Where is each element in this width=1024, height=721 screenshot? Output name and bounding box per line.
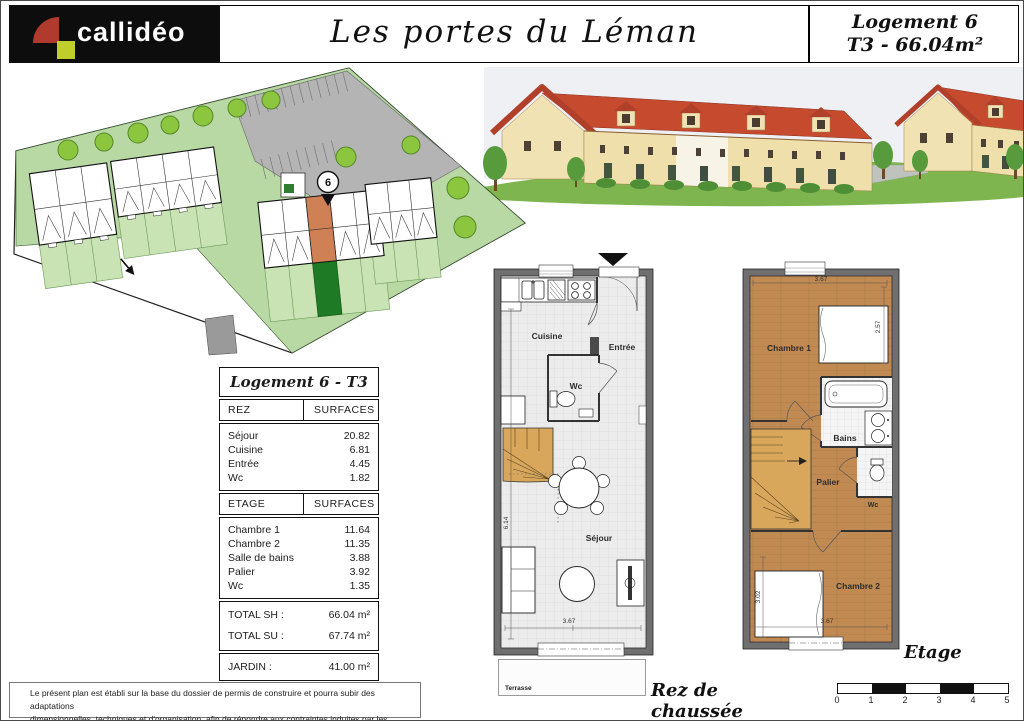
table-row: Cuisine6.81 [220, 443, 378, 457]
scale-segment [838, 684, 872, 693]
room-label-sejour: Séjour [586, 533, 613, 543]
dim-right: 2.57 [875, 320, 882, 333]
unit-info: Logement 6 T3 - 66.04m² [810, 11, 1020, 57]
table-row: Chambre 111.64 [220, 523, 378, 537]
3d-render [476, 67, 1024, 213]
bed-chambre1 [819, 306, 888, 363]
entrance-arrow-icon [598, 253, 628, 266]
scale-segment [872, 684, 906, 693]
room-label-wc: Wc [570, 381, 583, 391]
table-row: Chambre 211.35 [220, 537, 378, 551]
brand-name: callidéo [77, 17, 186, 48]
scale-label: 0 [830, 695, 844, 705]
jardin-box: JARDIN :41.00 m² [219, 653, 379, 681]
brand-logo-mark [21, 7, 83, 61]
caption-upper-floor: Etage [904, 642, 962, 663]
dim-left: 3.02 [755, 590, 762, 603]
project-title: Les portes du Léman [221, 14, 808, 50]
logo-green-square [57, 41, 75, 59]
footer-note: Le présent plan est établi sur la base d… [9, 682, 421, 718]
rez-header: REZ SURFACES [219, 399, 379, 421]
scale-bar-segments [837, 683, 1009, 694]
kitchen-counter [501, 278, 597, 302]
ground-floor-plan: 6.14 3.67 Cuisine Entrée Wc Séjour [491, 251, 656, 661]
room-label-palier: Palier [816, 477, 840, 487]
logo-red-shape [33, 17, 59, 43]
table-row: Séjour20.82 [220, 429, 378, 443]
caption-ground-floor: Rez de chaussée [651, 680, 811, 721]
surfaces-table-title: Logement 6 - T3 [219, 367, 379, 397]
plan-sheet: callidéo Les portes du Léman Logement 6 … [0, 0, 1024, 721]
dim-bottom: 3.67 [821, 618, 834, 625]
room-label-entree: Entrée [609, 342, 636, 352]
coffee-table [560, 567, 595, 602]
footer-line-2: dimensionnelles, techniques et d'organis… [30, 713, 414, 721]
scale-segment [940, 684, 974, 693]
toilet [870, 459, 884, 481]
surfaces-table: Logement 6 - T3 REZ SURFACES Séjour20.82… [219, 367, 379, 683]
building-row-4 [365, 178, 437, 245]
drainer [548, 280, 565, 300]
shed [281, 173, 305, 197]
brand-logo: callidéo [9, 5, 220, 63]
uf-stairs [751, 429, 811, 529]
table-row: TOTAL SH :66.04 m² [220, 605, 378, 626]
scale-segment [906, 684, 940, 693]
dim-top: 3.67 [815, 276, 828, 283]
unit-spec: T3 - 66.04m² [810, 34, 1020, 57]
scale-label: 5 [1000, 695, 1014, 705]
unit6-marker-label: 6 [325, 177, 331, 189]
table-row: Palier3.92 [220, 565, 378, 579]
bathtub [825, 381, 887, 407]
dim-height: 6.14 [503, 516, 510, 529]
table-row: TOTAL SU :67.74 m² [220, 626, 378, 647]
site-plan: 6 [9, 65, 544, 360]
table-row: Entrée4.45 [220, 457, 378, 471]
rez-header-col2: SURFACES [304, 400, 378, 420]
scale-segment [974, 684, 1008, 693]
table-row: Salle de bains3.88 [220, 551, 378, 565]
washing-machine [501, 396, 525, 424]
unit-name: Logement 6 [810, 11, 1020, 34]
rez-body: Séjour20.82 Cuisine6.81 Entrée4.45 Wc1.8… [219, 423, 379, 491]
upper-floor-plan: 3.67 2.57 3.02 3.67 Chambre 1 Bains Pali… [739, 251, 904, 651]
room-label-chambre1: Chambre 1 [767, 343, 811, 353]
building-row-1 [29, 163, 117, 249]
vanity-sinks [865, 411, 892, 445]
scale-label: 3 [932, 695, 946, 705]
totals-box: TOTAL SH :66.04 m² TOTAL SU :67.74 m² [219, 601, 379, 651]
sofa [502, 547, 535, 613]
toilet [550, 391, 575, 407]
scale-label: 1 [864, 695, 878, 705]
etage-body: Chambre 111.64 Chambre 211.35 Salle de b… [219, 517, 379, 599]
footer-line-1: Le présent plan est établi sur la base d… [30, 687, 414, 713]
hand-basin [579, 409, 593, 417]
scale-bar: 0 1 2 3 4 5 [827, 677, 1019, 711]
dim-width: 3.67 [563, 618, 576, 625]
table-row: JARDIN :41.00 m² [220, 654, 378, 680]
room-label-cuisine: Cuisine [532, 331, 563, 341]
site-gray-patch [205, 315, 237, 355]
tv-unit [617, 560, 644, 606]
building-row-3 [258, 190, 384, 268]
table-row: Wc1.82 [220, 471, 378, 485]
header: callidéo Les portes du Léman Logement 6 … [9, 5, 1019, 63]
room-label-wc: Wc [868, 502, 879, 509]
etage-header: ETAGE SURFACES [219, 493, 379, 515]
scale-label: 2 [898, 695, 912, 705]
room-label-chambre2: Chambre 2 [836, 581, 880, 591]
stove [568, 280, 595, 300]
terrace-box: Terrasse [498, 659, 646, 696]
rez-header-col1: REZ [220, 400, 304, 420]
room-label-bains: Bains [833, 433, 856, 443]
terrace-label: Terrasse [505, 685, 532, 692]
etage-header-col2: SURFACES [304, 494, 378, 514]
etage-header-col1: ETAGE [220, 494, 304, 514]
table-row: Wc1.35 [220, 579, 378, 593]
scale-label: 4 [966, 695, 980, 705]
